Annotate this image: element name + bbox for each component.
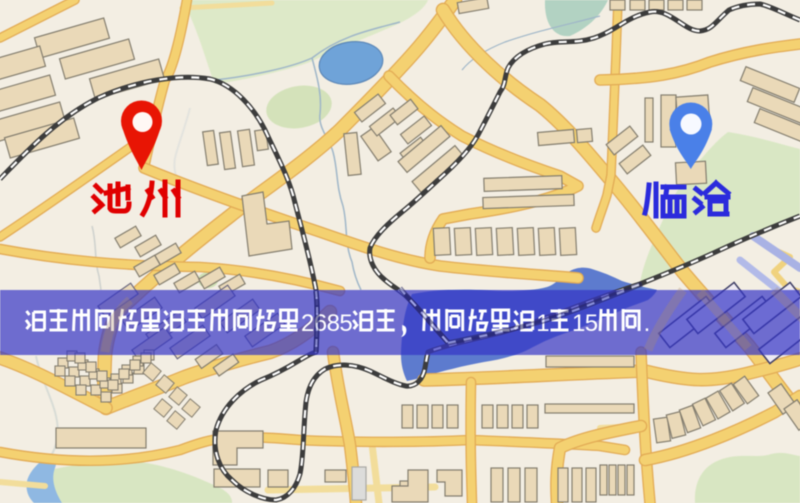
svg-text:.: .: [644, 310, 651, 337]
svg-text:2: 2: [301, 310, 314, 337]
svg-text:5: 5: [585, 310, 598, 337]
svg-text:5: 5: [339, 310, 352, 337]
svg-text:1: 1: [572, 310, 585, 337]
svg-text:8: 8: [327, 310, 340, 337]
